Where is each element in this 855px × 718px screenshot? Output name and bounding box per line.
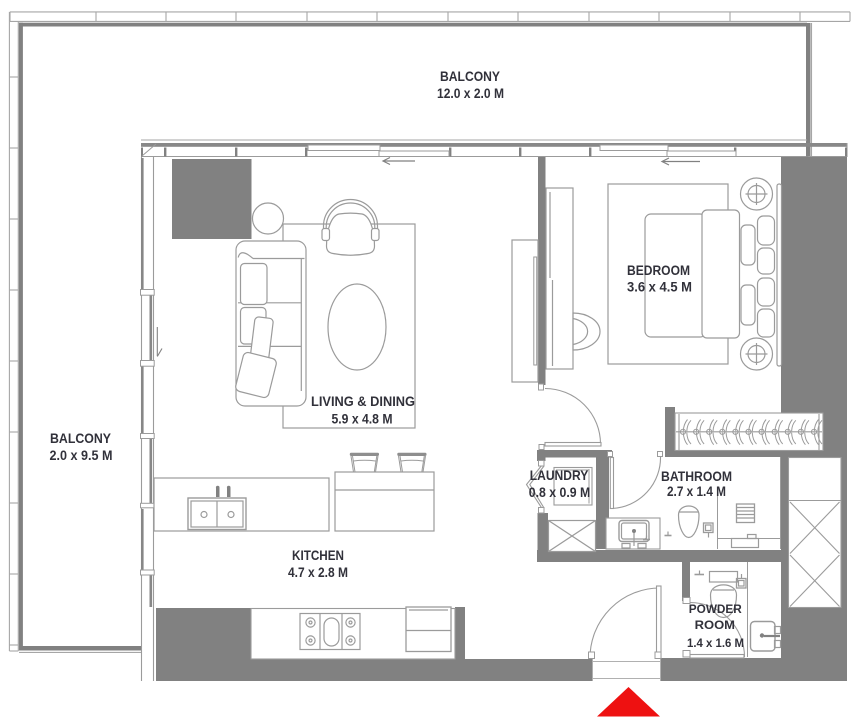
svg-text:BEDROOM: BEDROOM xyxy=(627,263,690,278)
svg-text:BALCONY: BALCONY xyxy=(50,431,111,446)
svg-text:1.4 x 1.6 M: 1.4 x 1.6 M xyxy=(687,636,744,650)
svg-text:5.9 x 4.8 M: 5.9 x 4.8 M xyxy=(332,412,393,427)
svg-text:ROOM: ROOM xyxy=(695,618,735,632)
svg-text:3.6 x 4.5 M: 3.6 x 4.5 M xyxy=(627,280,692,295)
svg-text:LIVING & DINING: LIVING & DINING xyxy=(311,394,415,409)
svg-text:0.8 x 0.9 M: 0.8 x 0.9 M xyxy=(529,485,591,500)
svg-text:KITCHEN: KITCHEN xyxy=(292,548,344,563)
svg-text:2.0 x 9.5 M: 2.0 x 9.5 M xyxy=(50,448,113,463)
svg-text:BALCONY: BALCONY xyxy=(440,69,500,84)
svg-text:12.0 x 2.0 M: 12.0 x 2.0 M xyxy=(437,86,504,101)
svg-text:LAUNDRY: LAUNDRY xyxy=(530,468,589,483)
svg-text:2.7 x 1.4 M: 2.7 x 1.4 M xyxy=(667,484,726,499)
svg-text:BATHROOM: BATHROOM xyxy=(661,469,732,484)
svg-text:POWDER: POWDER xyxy=(689,602,742,616)
svg-text:4.7 x 2.8 M: 4.7 x 2.8 M xyxy=(288,565,348,580)
